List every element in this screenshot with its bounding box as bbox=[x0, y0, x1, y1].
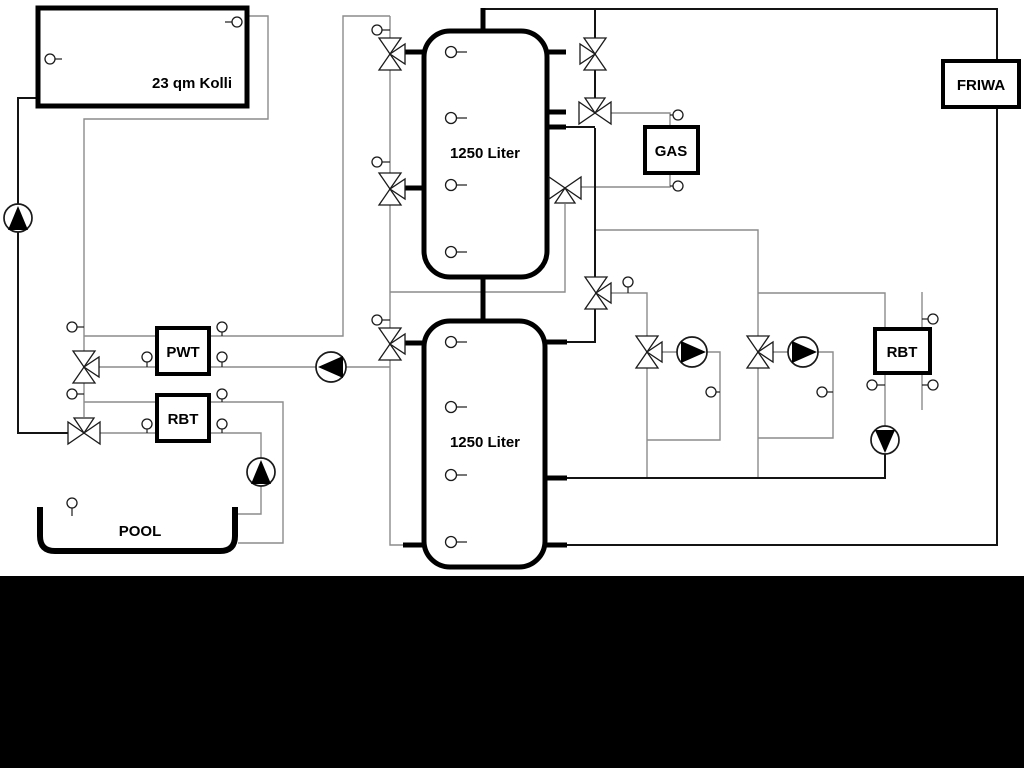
pump-pool-icon bbox=[247, 458, 275, 486]
rbt-left-label: RBT bbox=[168, 411, 199, 428]
hydraulic-schematic-page: 23 qm Kolli 1250 Liter 1250 Liter PWT RB… bbox=[0, 0, 1024, 768]
collector-label: 23 qm Kolli bbox=[152, 75, 232, 92]
rbt-right-label: RBT bbox=[887, 344, 918, 361]
friwa-label: FRIWA bbox=[957, 77, 1005, 94]
tank-bottom-label: 1250 Liter bbox=[450, 434, 520, 451]
pump-circuit2-icon bbox=[788, 337, 818, 367]
pool-label: POOL bbox=[119, 523, 162, 540]
tank-top-label: 1250 Liter bbox=[450, 145, 520, 162]
pump-storage-charge-icon bbox=[316, 352, 346, 382]
bottom-black-band bbox=[0, 576, 1024, 768]
gas-label: GAS bbox=[655, 143, 688, 160]
pump-circuit1-icon bbox=[677, 337, 707, 367]
hydraulic-schematic: 23 qm Kolli 1250 Liter 1250 Liter PWT RB… bbox=[0, 0, 1024, 768]
pump-solar-icon bbox=[4, 204, 32, 232]
pump-rbt-right-icon bbox=[871, 426, 899, 454]
pwt-label: PWT bbox=[166, 344, 199, 361]
